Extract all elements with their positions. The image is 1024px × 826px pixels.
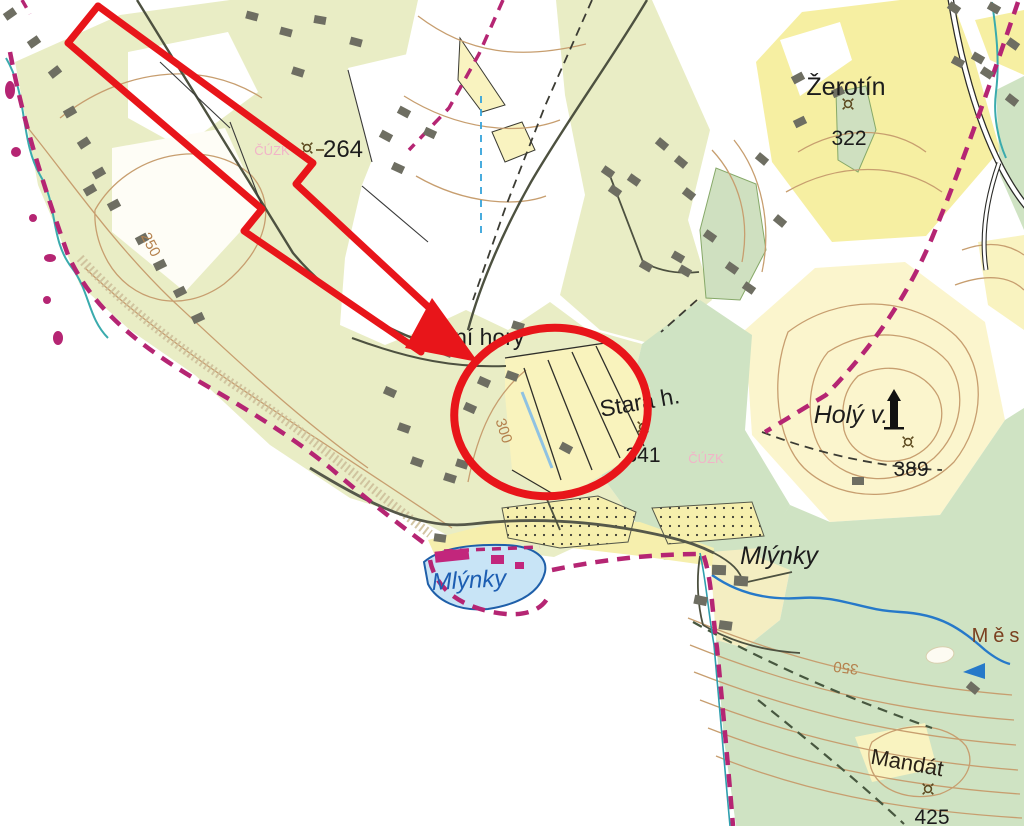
- map-canvas[interactable]: Žerotín 322 ČÚZK 264 Dolní hory Stará h.…: [0, 0, 1024, 826]
- topographic-map[interactable]: Žerotín 322 ČÚZK 264 Dolní hory Stará h.…: [0, 0, 1024, 826]
- elevation-label-425: 425: [914, 806, 949, 826]
- place-label-mlynky-village: Mlýnky: [740, 542, 819, 570]
- contour-label-350: 350: [832, 657, 859, 677]
- watermark-label: ČÚZK: [688, 451, 724, 466]
- elevation-label-322: 322: [831, 127, 866, 150]
- water-label-mlynky-pond: Mlýnky: [431, 565, 509, 596]
- elevation-label-389: 389: [893, 458, 928, 481]
- place-label-zerotin: Žerotín: [806, 72, 885, 101]
- place-label-holy-v: Holý v.: [814, 401, 889, 429]
- elevation-label-264: 264: [323, 136, 363, 163]
- place-label-mestsky: Měs: [972, 625, 1024, 647]
